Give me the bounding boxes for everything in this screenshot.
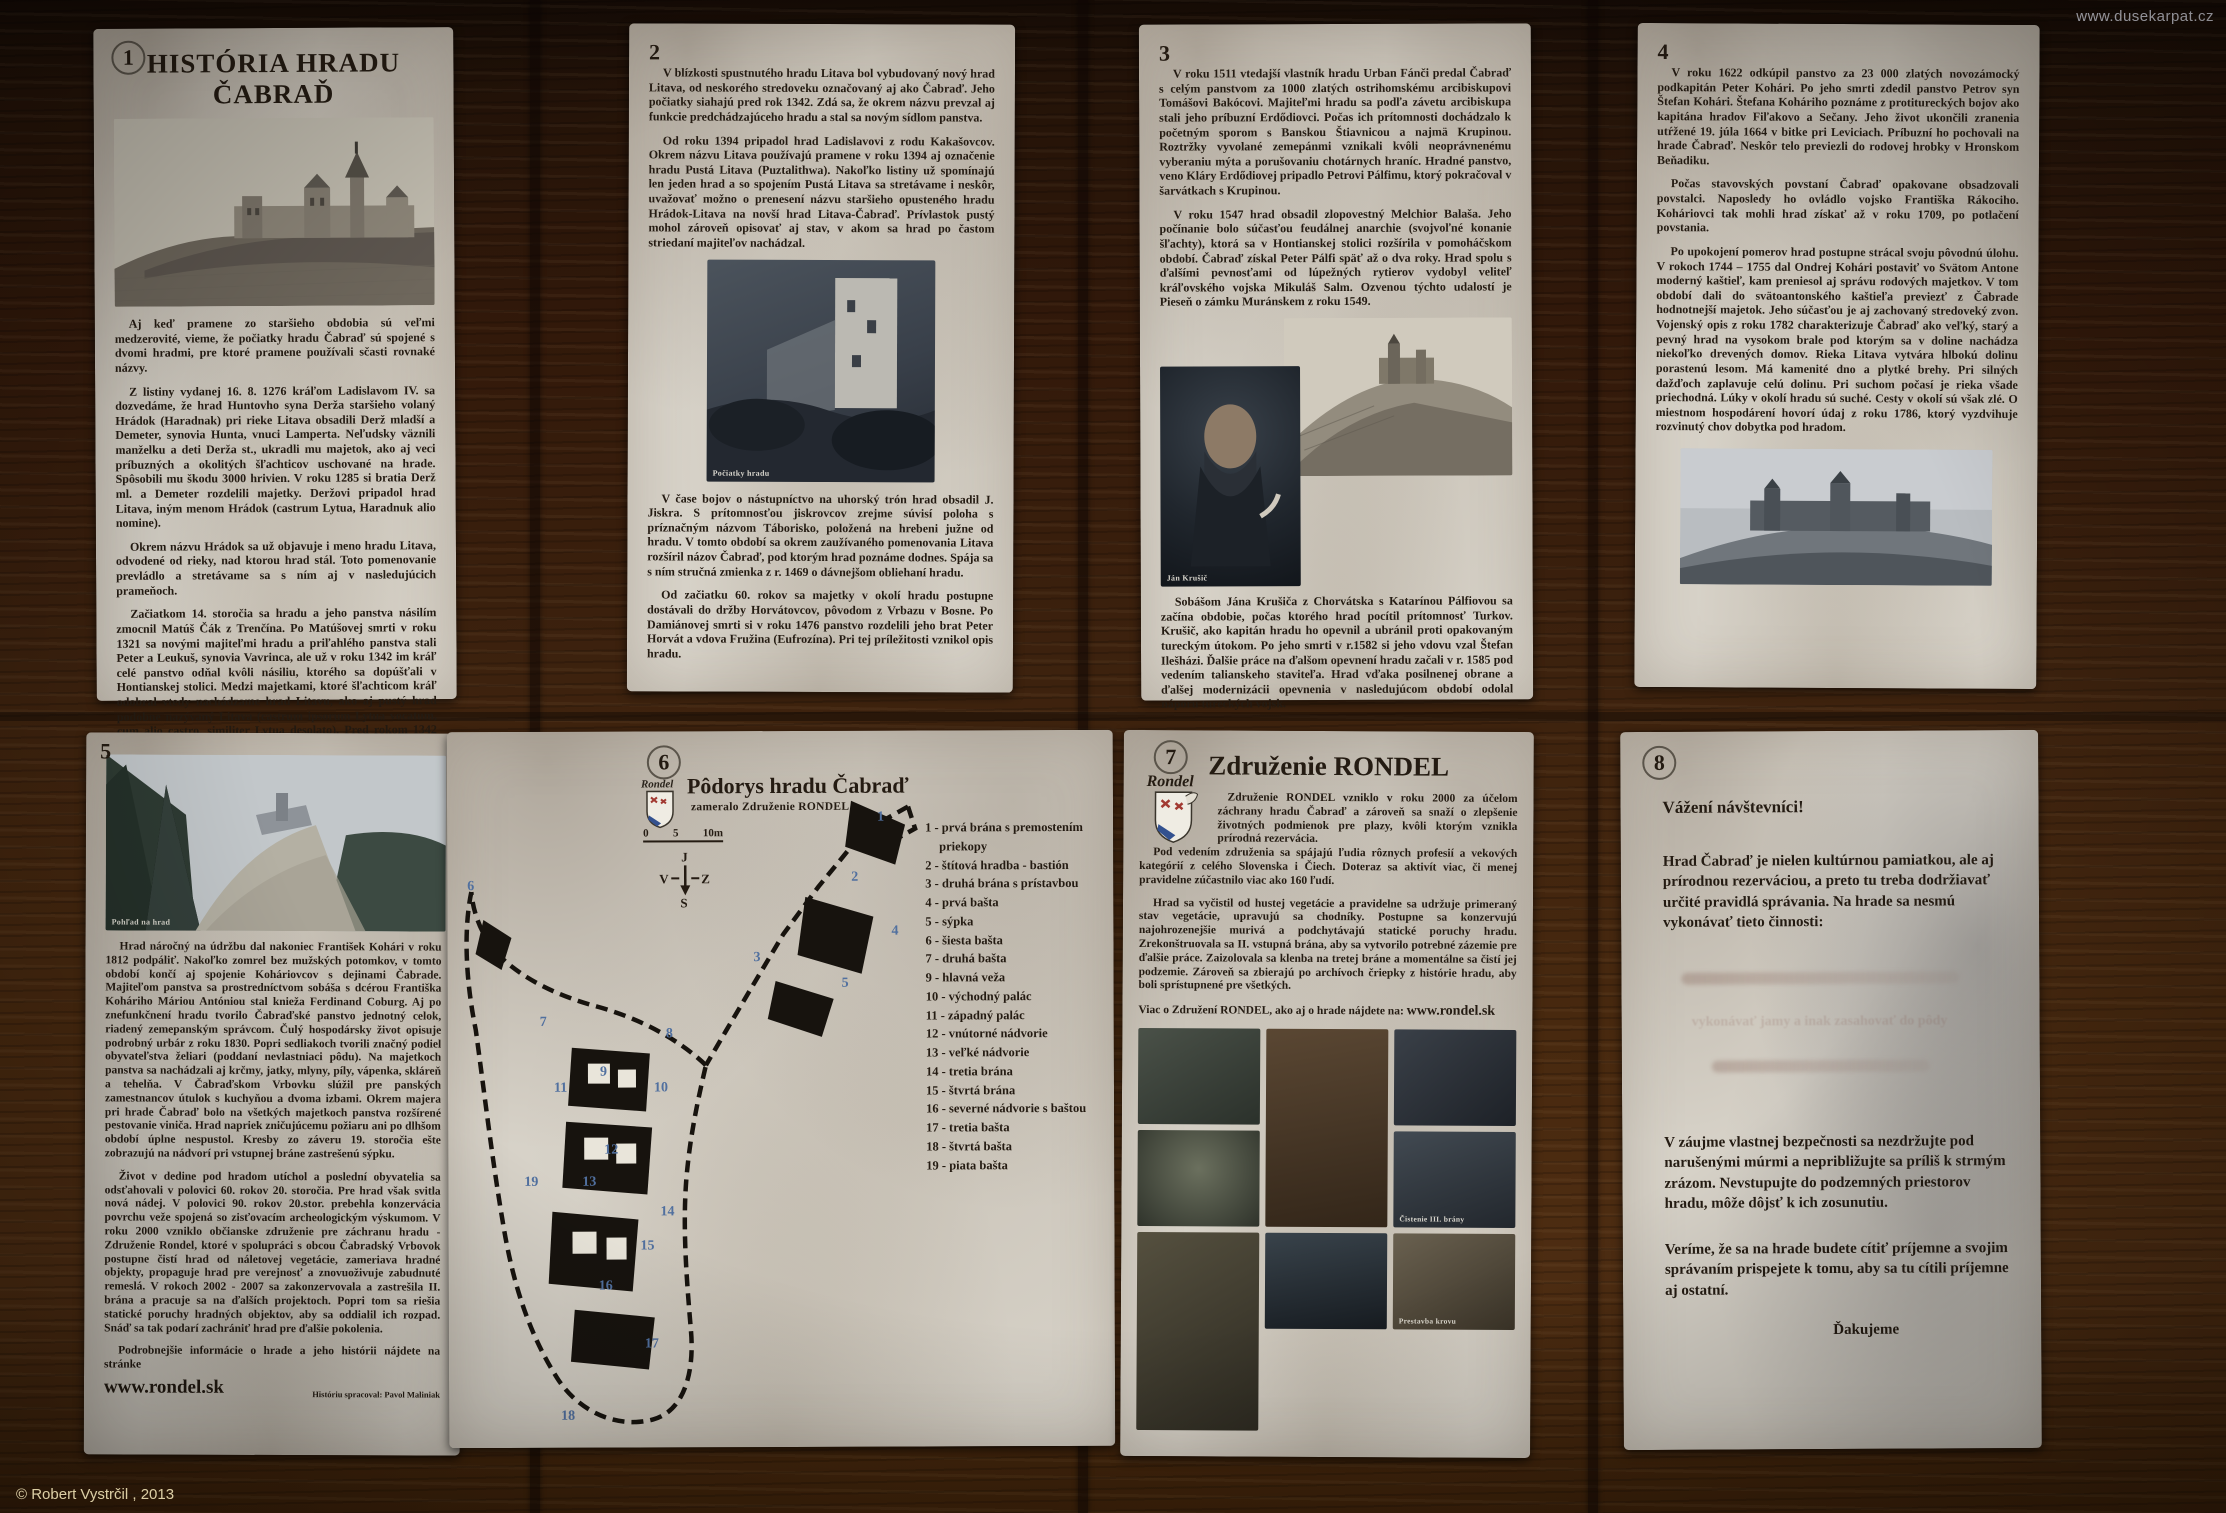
svg-text:13: 13 — [582, 1175, 596, 1190]
svg-text:2: 2 — [851, 870, 858, 885]
faded-rule-line — [1681, 971, 1959, 984]
photo-copyright: © Robert Vystrčil , 2013 — [16, 1486, 174, 1503]
legend-item: 14 - tretia brána — [926, 1062, 1098, 1081]
castle-photo: Počiatky hradu — [707, 259, 936, 482]
panel-number-badge: 1 — [111, 41, 145, 75]
legend-item: 11 - západný palác — [926, 1005, 1098, 1024]
paragraph: V záujme vlastnej bezpečnosti sa nezdržu… — [1664, 1131, 2014, 1214]
legend-item: 3 - druhá brána s prístavbou — [925, 874, 1097, 893]
legend-item: 18 - štvrtá bašta — [926, 1137, 1098, 1156]
panel-3: 3 V roku 1511 vtedajší vlastník hradu Ur… — [1139, 23, 1533, 700]
castle-hill-drawing — [1284, 317, 1513, 476]
svg-text:16: 16 — [599, 1279, 613, 1294]
paragraph: Z listiny vydanej 16. 8. 1276 kráľom Lad… — [115, 383, 436, 531]
photo-caption: Počiatky hradu — [713, 468, 770, 477]
thanks-text: Ďakujeme — [1833, 1321, 2021, 1339]
paragraph: Od začiatku 60. rokov sa majetky v okolí… — [647, 588, 993, 662]
panel-number-badge: 3 — [1159, 41, 1511, 64]
svg-text:15: 15 — [641, 1238, 655, 1253]
svg-text:10: 10 — [654, 1080, 668, 1095]
legend-item: 9 - hlavná veža — [926, 968, 1098, 987]
legend-item: 6 - šiesta bašta — [925, 930, 1097, 949]
paragraph: Pod vedením združenia sa spájajú ľudia r… — [1139, 846, 1517, 889]
visitors-heading: Vážení návštevníci! — [1662, 796, 2018, 818]
panel-5: 5 Pohľad na hrad Hrad náročný na údržbu … — [84, 732, 463, 1455]
paragraph: Aj keď pramene zo staršieho obdobia sú v… — [115, 315, 435, 375]
castle-photo-drawing — [707, 259, 936, 482]
panel-number-badge: 5 — [100, 740, 111, 762]
rondel-crest-icon: Rondel — [1145, 772, 1201, 846]
panel-4: 4 V roku 1622 odkúpil panstvo za 23 000 … — [1634, 23, 2039, 689]
svg-text:4: 4 — [891, 924, 898, 939]
svg-text:6: 6 — [467, 879, 474, 894]
paragraph: Sobášom Jána Krušiča z Chorvátska s Kata… — [1161, 593, 1513, 711]
svg-text:9: 9 — [600, 1065, 607, 1080]
montage-photo — [1394, 1029, 1517, 1126]
svg-text:1: 1 — [877, 810, 884, 825]
svg-text:18: 18 — [561, 1409, 575, 1424]
legend-item: 17 - tretia bašta — [926, 1118, 1098, 1137]
svg-text:Rondel: Rondel — [1146, 773, 1195, 790]
panel-6-floor-plan: 6 Rondel Pôdorys hradu Čabraď zameralo Z… — [447, 730, 1115, 1448]
legend-item: 16 - severné nádvorie s baštou — [926, 1099, 1098, 1118]
montage-photo: Prestavba krovu — [1393, 1233, 1516, 1330]
jan-krusic-portrait: Ján Krušič — [1160, 366, 1301, 586]
montage-photo-caption: Čistenie III. brány — [1399, 1214, 1464, 1223]
castle-engraving-drawing — [114, 117, 435, 307]
legend-item: 7 - druhá bašta — [926, 949, 1098, 968]
montage-photo — [1265, 1233, 1388, 1330]
svg-text:17: 17 — [645, 1336, 659, 1351]
svg-text:3: 3 — [754, 950, 761, 965]
legend-item: 1 - prvá brána s premostením priekopy — [925, 818, 1097, 856]
montage-photo — [1138, 1028, 1261, 1125]
panel-number-badge: 2 — [649, 41, 995, 64]
paragraph: Veríme, že sa na hrade budete cítiť príj… — [1665, 1238, 2015, 1301]
rondel-website-link[interactable]: www.rondel.sk — [1407, 1004, 1496, 1019]
castle-panorama-image — [1680, 448, 1993, 586]
svg-text:14: 14 — [660, 1204, 674, 1219]
castle-floor-plan-drawing: 1 2 3 4 5 6 7 8 9 10 11 12 13 14 15 16 1… — [453, 768, 935, 1432]
photo-caption: Pohľad na hrad — [112, 917, 171, 926]
paragraph: Hrad sa vyčistil od hustej vegetácie a p… — [1139, 897, 1518, 996]
panel-2: 2 V blízkosti spustnutého hradu Litava b… — [627, 23, 1015, 692]
paragraph: V roku 1547 hrad obsadil zlopovestný Mel… — [1159, 206, 1511, 310]
legend-item: 4 - prvá bašta — [925, 893, 1097, 912]
panel-title: HISTÓRIA HRADU ČABRAĎ — [113, 47, 433, 111]
paragraph: Počas stavovských povstaní Čabraď opakov… — [1657, 176, 2019, 236]
footer-text: Podrobnejšie informácie o hrade a jeho h… — [104, 1345, 440, 1374]
legend-item: 12 - vnútorné nádvorie — [926, 1024, 1098, 1043]
photo-montage: Čistenie III. brány Prestavba krovu — [1136, 1028, 1516, 1432]
history-credit: Históriu spracoval: Pavol Maliniak — [312, 1389, 440, 1399]
castle-view-photo: Pohľad na hrad — [106, 754, 447, 931]
faded-rule-text: vykonávať jamy a inak zasahovať do pôdy — [1692, 1013, 1990, 1031]
panel-number-badge: 8 — [1642, 746, 1676, 780]
montage-photo — [1136, 1232, 1259, 1431]
paragraph: Od roku 1394 pripadol hrad Ladislavovi z… — [648, 133, 994, 251]
montage-photo — [1137, 1130, 1260, 1227]
paragraph: V roku 1511 vtedajší vlastník hradu Urba… — [1159, 65, 1511, 198]
rondel-website-link[interactable]: www.rondel.sk — [104, 1376, 224, 1398]
paragraph: Po upokojení pomerov hrad postupne strác… — [1656, 244, 2019, 436]
svg-text:8: 8 — [666, 1026, 673, 1041]
panel-1-historia: 1 HISTÓRIA HRADU ČABRAĎ Aj keď pra — [93, 27, 457, 701]
panel-8-visitors: 8 Vážení návštevníci! Hrad Čabraď je nie… — [1620, 730, 2042, 1450]
paragraph: V čase bojov o nástupníctvo na uhorský t… — [647, 491, 993, 580]
more-info-text: Viac o Združení RONDEL, ako aj o hrade n… — [1138, 1004, 1406, 1017]
svg-text:11: 11 — [554, 1081, 567, 1096]
svg-text:7: 7 — [540, 1015, 547, 1030]
svg-text:12: 12 — [604, 1143, 618, 1158]
paragraph: Život v dedine pod hradom utíchol a posl… — [104, 1170, 441, 1337]
paragraph: Hrad Čabraď je nielen kultúrnou pamiatko… — [1663, 850, 2013, 933]
legend-item: 10 - východný palác — [926, 987, 1098, 1006]
faded-rule-line — [1712, 1059, 1930, 1072]
paragraph: V blízkosti spustnutého hradu Litava bol… — [649, 65, 995, 125]
castle-engraving-image — [114, 117, 435, 307]
photo-watermark: www.dusekarpat.cz — [2076, 8, 2214, 25]
plan-legend: 1 - prvá brána s premostením priekopy 2 … — [925, 818, 1098, 1175]
montage-photo-caption: Prestavba krovu — [1399, 1316, 1456, 1325]
panel-number-badge: 4 — [1658, 41, 2020, 65]
legend-item: 13 - veľké nádvorie — [926, 1043, 1098, 1062]
paragraph: V roku 1622 odkúpil panstvo za 23 000 zl… — [1657, 65, 2020, 169]
svg-text:5: 5 — [842, 976, 849, 991]
montage-photo — [1265, 1029, 1388, 1228]
svg-text:19: 19 — [524, 1175, 538, 1190]
paragraph: Okrem názvu Hrádok sa už objavuje i meno… — [116, 538, 436, 598]
legend-item: 2 - štítová hradba - bastión — [925, 855, 1097, 874]
paragraph: Hrad náročný na údržbu dal nakoniec Fran… — [105, 940, 442, 1162]
panel-7-rondel: 7 Rondel Združenie RONDEL Združenie ROND… — [1120, 730, 1534, 1458]
panel-3-images: Ján Krušič — [1160, 317, 1513, 586]
legend-item: 5 - sýpka — [925, 912, 1097, 931]
legend-item: 15 - štvrtá brána — [926, 1080, 1098, 1099]
plank-joint — [1588, 0, 1598, 1513]
panel-number-badge: 7 — [1154, 740, 1188, 774]
legend-item: 19 - piata bašta — [926, 1155, 1098, 1174]
paragraph: Združenie RONDEL vzniklo v roku 2000 za … — [1217, 791, 1517, 848]
montage-photo: Čistenie III. brány — [1393, 1131, 1516, 1228]
portrait-caption: Ján Krušič — [1167, 573, 1208, 582]
